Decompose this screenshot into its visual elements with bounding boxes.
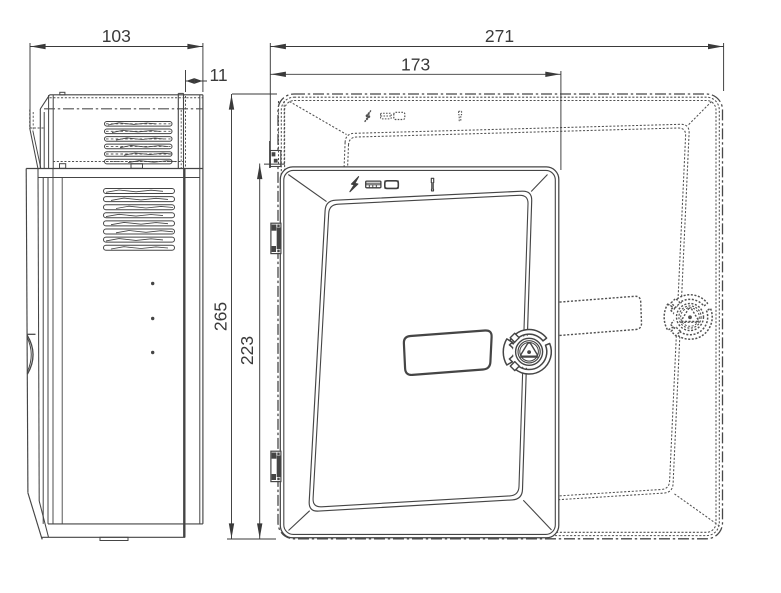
svg-text:265: 265 xyxy=(211,302,231,331)
svg-text:271: 271 xyxy=(485,26,514,46)
svg-text:11: 11 xyxy=(210,65,228,85)
svg-text:223: 223 xyxy=(237,336,257,365)
svg-text:173: 173 xyxy=(401,54,430,74)
svg-text:103: 103 xyxy=(102,26,131,46)
